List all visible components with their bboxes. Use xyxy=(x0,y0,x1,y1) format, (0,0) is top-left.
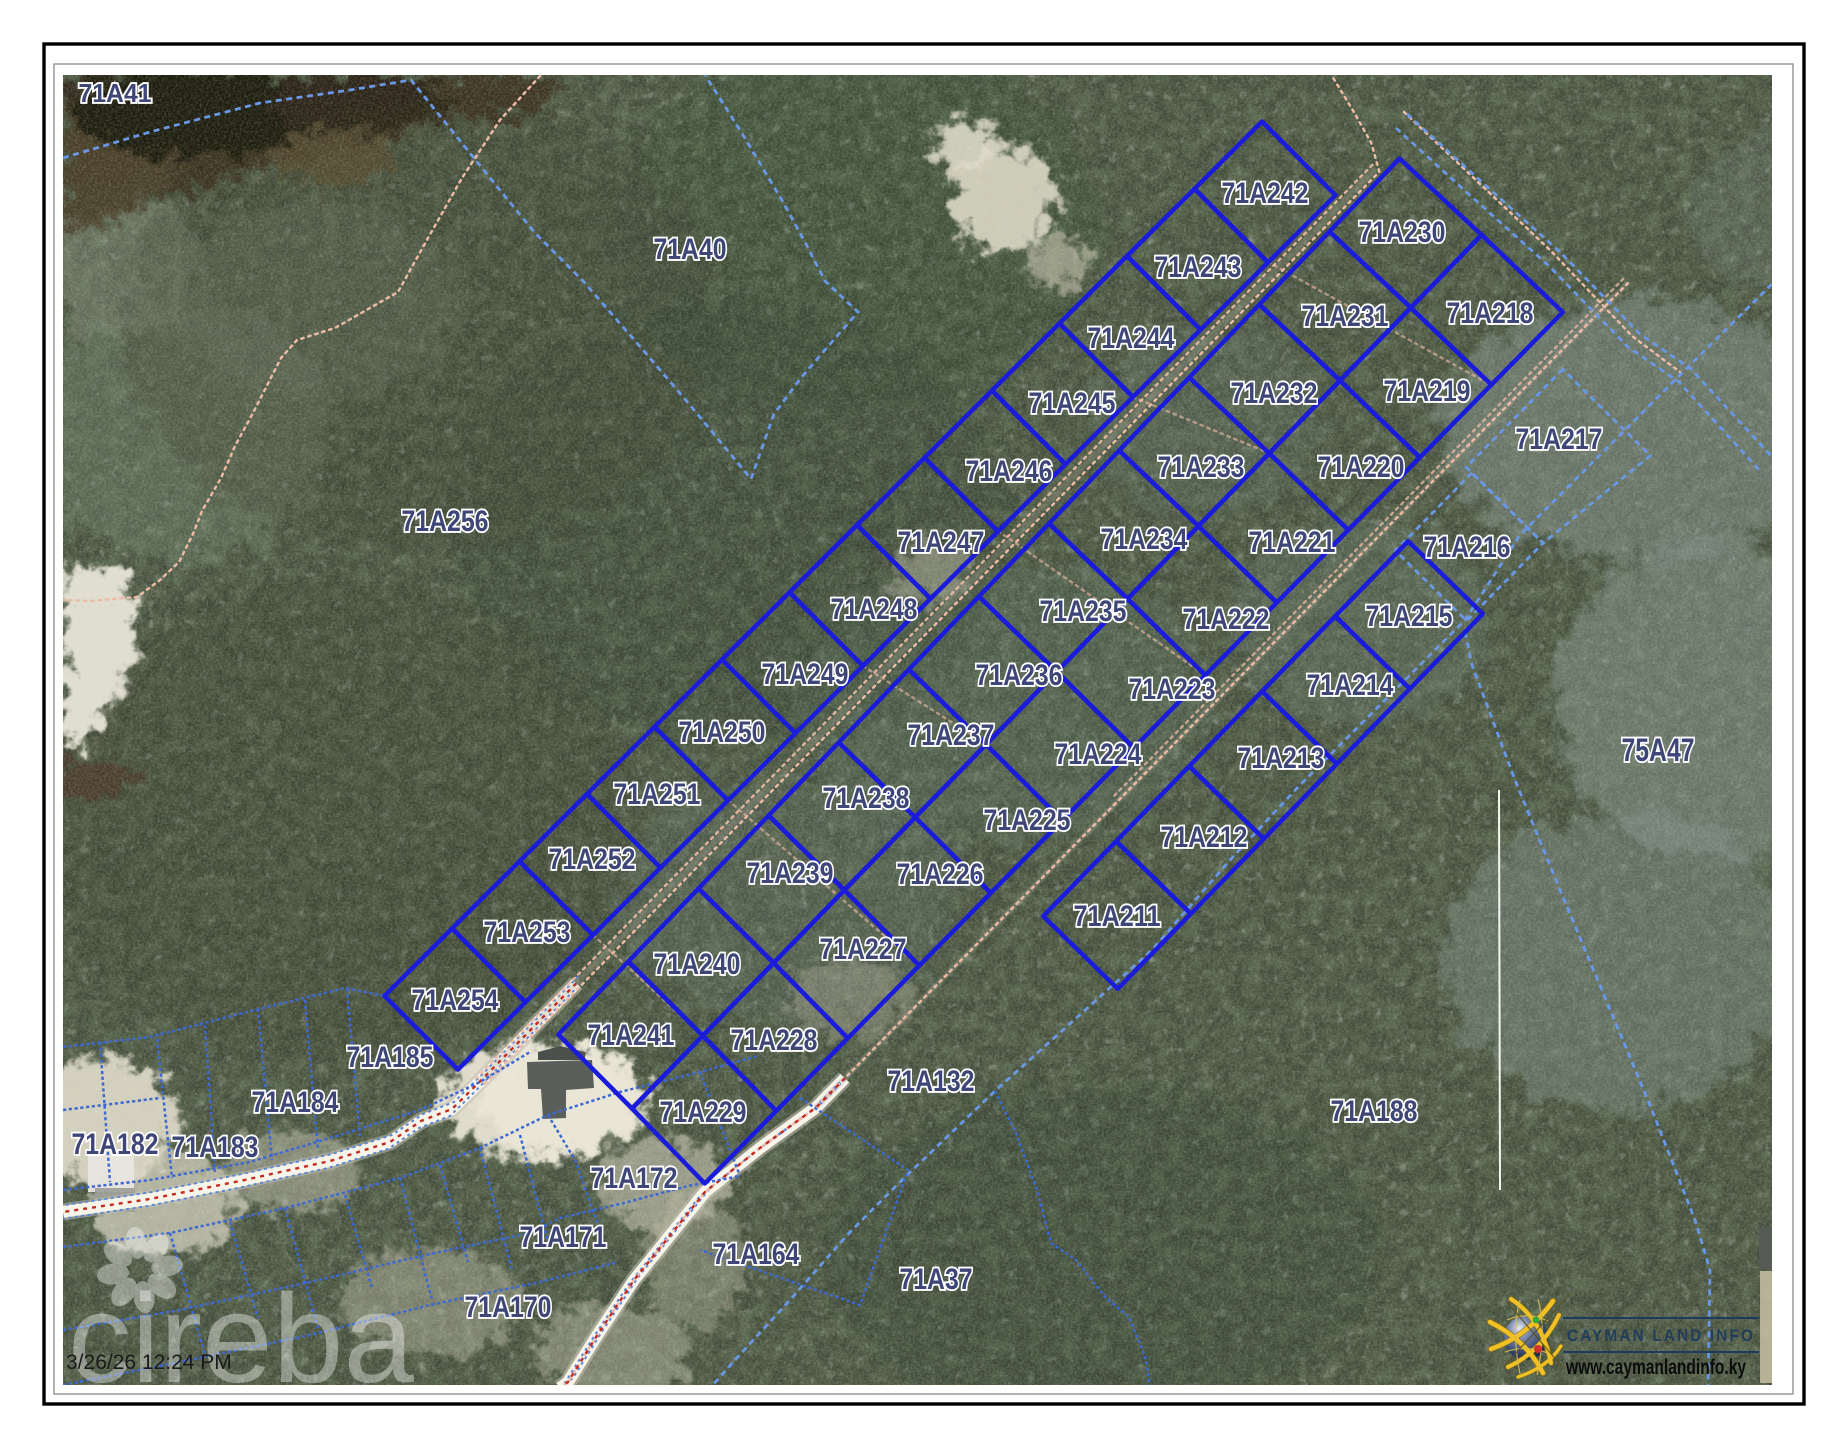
svg-text:71A227: 71A227 xyxy=(820,933,907,966)
svg-text:71A224: 71A224 xyxy=(1055,738,1142,771)
svg-text:71A249: 71A249 xyxy=(762,658,849,691)
svg-text:71A41: 71A41 xyxy=(79,78,152,108)
svg-text:71A219: 71A219 xyxy=(1384,375,1471,408)
svg-text:71A170: 71A170 xyxy=(465,1291,552,1324)
svg-text:71A250: 71A250 xyxy=(679,716,766,749)
svg-text:71A245: 71A245 xyxy=(1029,387,1116,420)
svg-text:71A252: 71A252 xyxy=(549,843,636,876)
svg-text:71A226: 71A226 xyxy=(897,858,984,891)
svg-text:71A253: 71A253 xyxy=(484,916,571,949)
svg-text:71A171: 71A171 xyxy=(520,1221,607,1254)
svg-text:71A254: 71A254 xyxy=(412,984,499,1017)
svg-text:71A172: 71A172 xyxy=(591,1162,678,1195)
svg-text:71A251: 71A251 xyxy=(614,778,701,811)
svg-text:71A221: 71A221 xyxy=(1249,526,1336,559)
svg-text:71A37: 71A37 xyxy=(900,1263,973,1296)
svg-text:71A233: 71A233 xyxy=(1158,451,1245,484)
svg-text:71A222: 71A222 xyxy=(1183,603,1270,636)
svg-text:71A240: 71A240 xyxy=(654,948,741,981)
svg-text:71A256: 71A256 xyxy=(402,505,489,538)
svg-text:71A235: 71A235 xyxy=(1040,595,1127,628)
svg-text:71A216: 71A216 xyxy=(1424,531,1511,564)
svg-text:71A239: 71A239 xyxy=(747,857,834,890)
svg-text:71A132: 71A132 xyxy=(888,1065,975,1098)
svg-text:CAYMAN LAND INFO: CAYMAN LAND INFO xyxy=(1567,1327,1755,1345)
svg-text:71A229: 71A229 xyxy=(660,1096,747,1129)
svg-text:71A237: 71A237 xyxy=(908,719,995,752)
svg-text:71A164: 71A164 xyxy=(713,1238,800,1271)
svg-text:71A234: 71A234 xyxy=(1101,523,1188,556)
svg-text:71A40: 71A40 xyxy=(654,233,727,266)
svg-text:71A184: 71A184 xyxy=(252,1086,339,1119)
svg-text:71A232: 71A232 xyxy=(1231,377,1318,410)
svg-text:71A246: 71A246 xyxy=(966,455,1053,488)
svg-text:71A236: 71A236 xyxy=(976,659,1063,692)
svg-text:71A225: 71A225 xyxy=(984,804,1071,837)
svg-text:71A185: 71A185 xyxy=(347,1041,434,1074)
svg-text:71A215: 71A215 xyxy=(1366,600,1453,633)
svg-text:71A241: 71A241 xyxy=(588,1019,675,1052)
svg-text:71A214: 71A214 xyxy=(1307,669,1394,702)
svg-text:71A242: 71A242 xyxy=(1222,177,1309,210)
svg-text:71A243: 71A243 xyxy=(1155,251,1242,284)
svg-text:71A231: 71A231 xyxy=(1302,300,1389,333)
svg-text:71A228: 71A228 xyxy=(731,1024,818,1057)
svg-text:71A218: 71A218 xyxy=(1447,297,1534,330)
svg-text:71A220: 71A220 xyxy=(1318,451,1405,484)
svg-text:71A244: 71A244 xyxy=(1088,322,1175,355)
svg-text:71A238: 71A238 xyxy=(823,782,910,815)
svg-text:71A188: 71A188 xyxy=(1331,1095,1418,1128)
svg-text:3/26/26 12:24 PM: 3/26/26 12:24 PM xyxy=(66,1351,232,1374)
svg-text:71A223: 71A223 xyxy=(1129,673,1216,706)
svg-text:71A217: 71A217 xyxy=(1516,423,1603,456)
svg-text:71A182: 71A182 xyxy=(72,1128,159,1161)
svg-text:71A211: 71A211 xyxy=(1074,900,1161,933)
svg-text:71A212: 71A212 xyxy=(1161,821,1248,854)
svg-text:75A47: 75A47 xyxy=(1622,732,1695,768)
svg-text:71A230: 71A230 xyxy=(1359,216,1446,249)
svg-text:71A248: 71A248 xyxy=(831,593,918,626)
svg-text:www.caymanlandinfo.ky: www.caymanlandinfo.ky xyxy=(1565,1356,1746,1379)
svg-text:71A183: 71A183 xyxy=(172,1131,259,1164)
svg-text:71A213: 71A213 xyxy=(1238,742,1325,775)
svg-text:71A247: 71A247 xyxy=(898,526,985,559)
